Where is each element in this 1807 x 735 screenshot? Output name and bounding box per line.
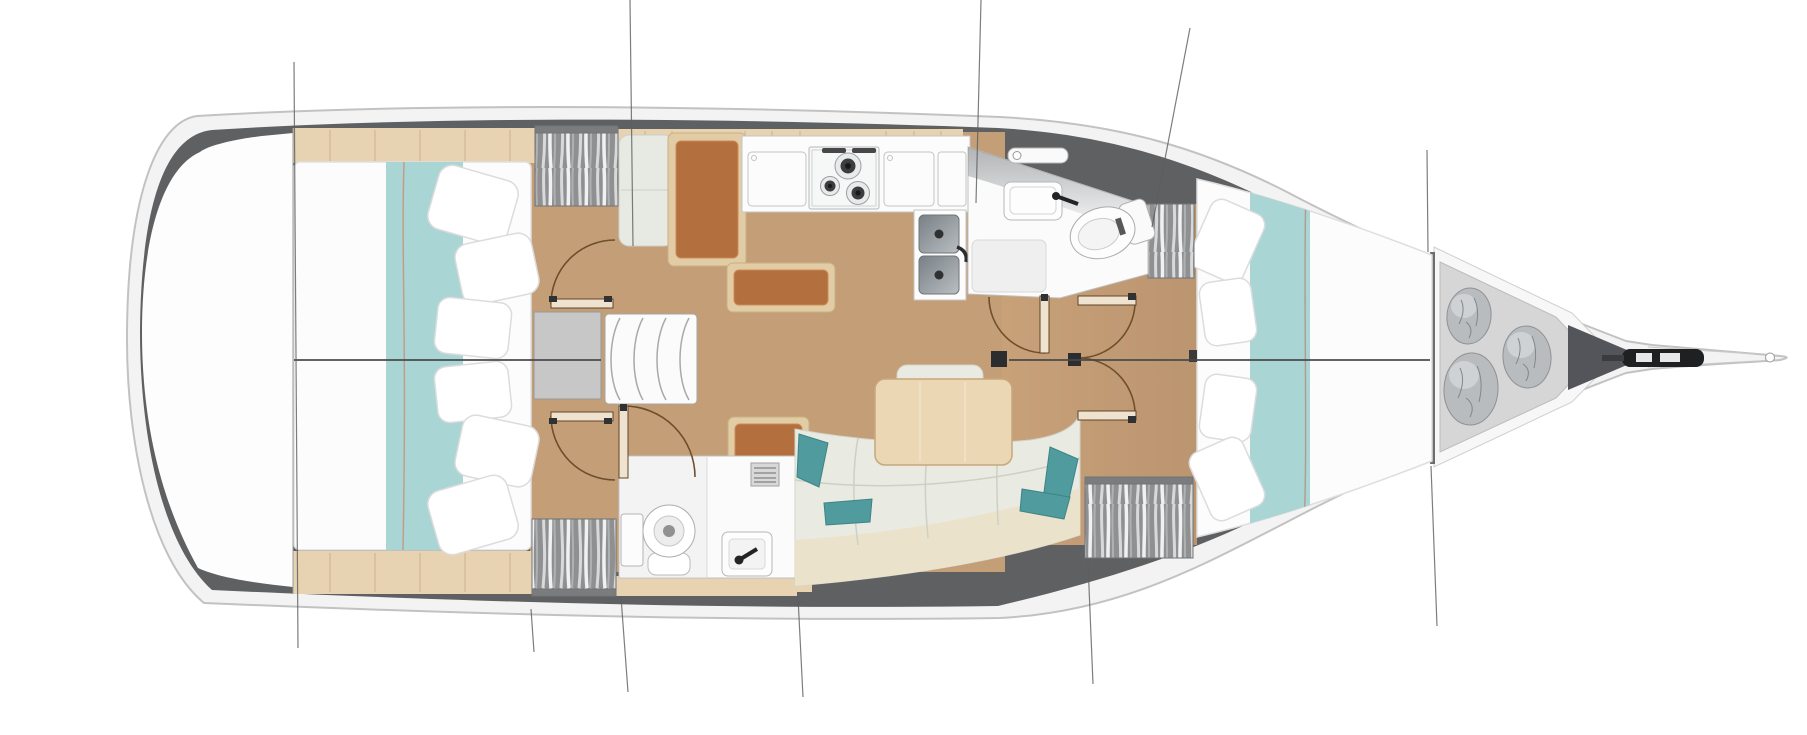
toilet xyxy=(621,505,695,575)
nav-seat xyxy=(619,135,674,246)
nav-desk xyxy=(534,312,601,399)
wardrobe-hanging-clothes xyxy=(1085,477,1193,558)
deck-hatch xyxy=(1008,148,1068,163)
yacht-floor-plan xyxy=(0,0,1807,735)
aft-head xyxy=(619,456,795,578)
galley-locker-seat xyxy=(727,263,835,312)
wardrobe-hanging-clothes xyxy=(1148,204,1194,278)
bathroom-sink xyxy=(722,532,772,576)
aft-cabin-bottom-trim xyxy=(293,551,534,594)
aft-cabin-top-trim xyxy=(293,128,536,163)
burner xyxy=(821,177,840,196)
wardrobe-hanging-clothes xyxy=(532,519,616,596)
aft-head-bottom-trim xyxy=(616,576,797,596)
dining-table xyxy=(875,379,1012,465)
anchor-shank xyxy=(1602,355,1624,361)
bow-tip-fitting xyxy=(1766,353,1775,362)
burner xyxy=(835,153,861,179)
shower-tray xyxy=(972,240,1046,292)
vent-grille xyxy=(751,463,779,486)
burner xyxy=(847,182,870,205)
companionway-steps xyxy=(605,314,697,404)
chart-bench xyxy=(668,133,746,266)
mast-step xyxy=(991,351,1007,367)
wardrobe-hanging-clothes xyxy=(535,126,618,206)
stove xyxy=(809,147,879,209)
